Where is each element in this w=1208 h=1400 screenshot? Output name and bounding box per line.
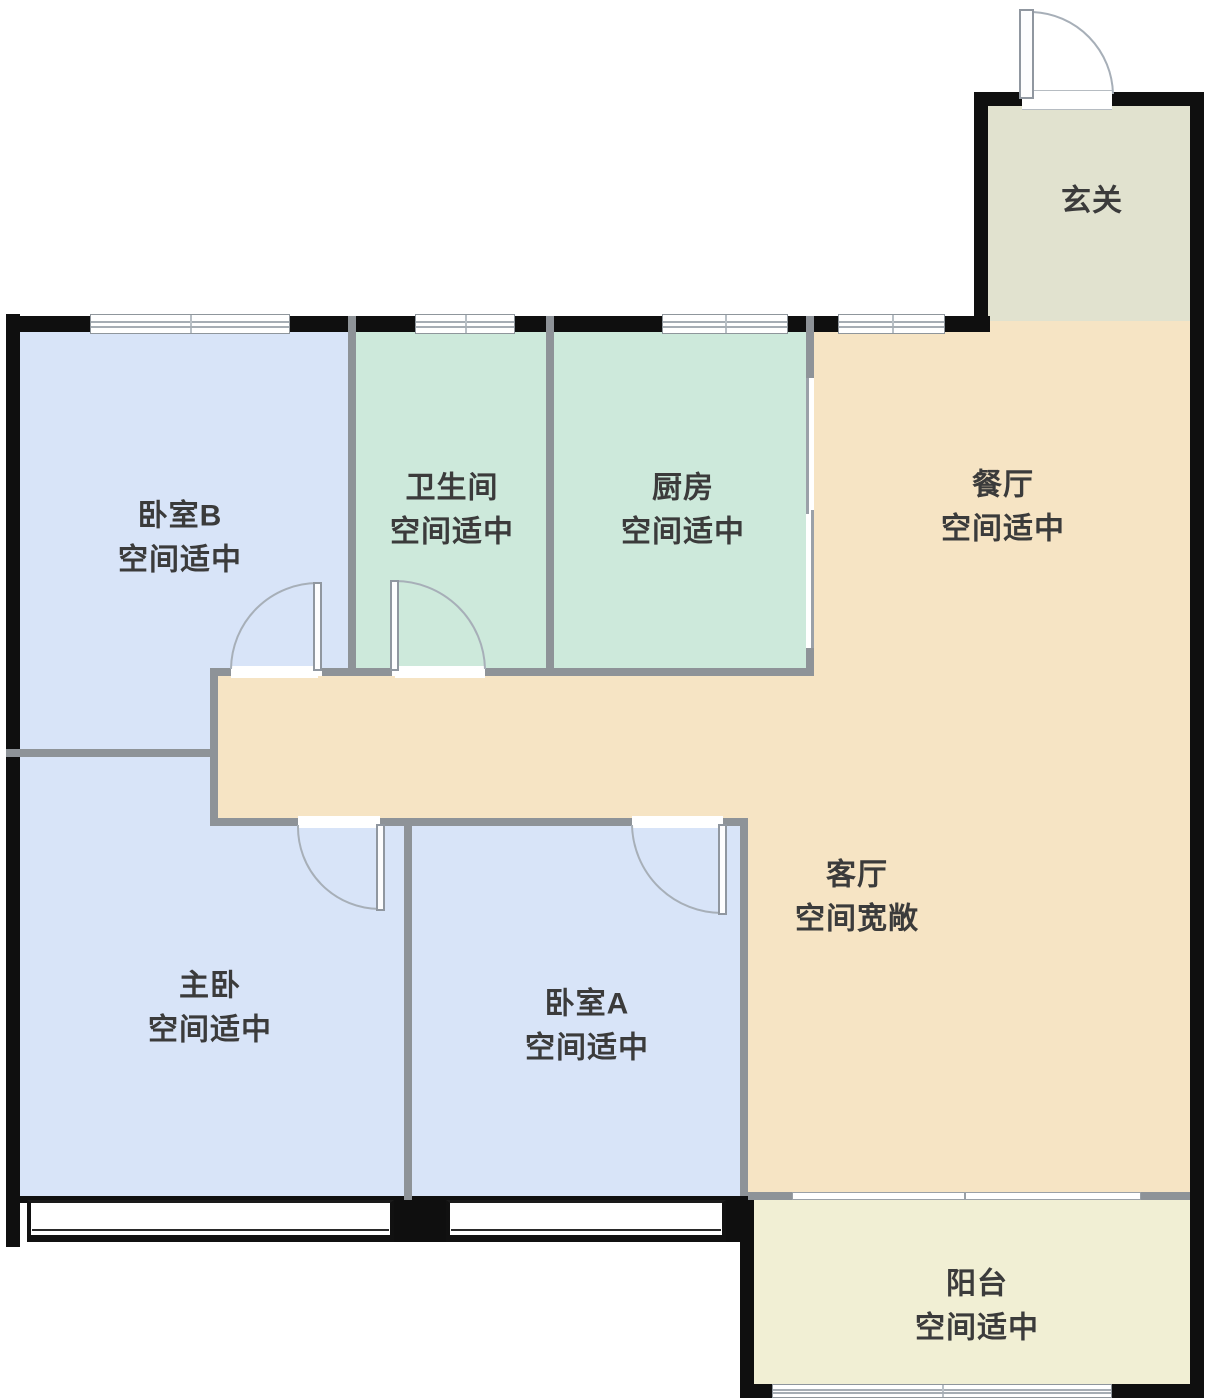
balcony-sliding-door-panel-2	[965, 1192, 1141, 1200]
room-name: 客厅	[795, 854, 919, 898]
entry-wall-left	[974, 104, 988, 332]
bedroomB-door-opening	[231, 666, 318, 678]
room-name: 玄关	[1061, 179, 1123, 223]
kitchen-window	[662, 314, 788, 334]
exterior-wall-left	[6, 314, 20, 1247]
bedroomB-master-wall	[6, 749, 218, 757]
entry-door-leaf	[1020, 10, 1033, 98]
room-name: 主卧	[148, 965, 272, 1009]
bedroomA-bay-window	[446, 1200, 726, 1242]
room-label-living: 客厅 空间宽敞	[795, 854, 919, 941]
room-label-bedroomA: 卧室A 空间适中	[525, 983, 649, 1070]
balcony-sliding-door-panel-1	[792, 1192, 965, 1200]
bedroomB-floor-lower	[20, 670, 210, 751]
room-status: 空间适中	[915, 1306, 1039, 1350]
room-label-balcony: 阳台 空间适中	[915, 1263, 1039, 1350]
bathroom-wall-left	[348, 316, 356, 676]
room-status: 空间适中	[525, 1026, 649, 1070]
room-status: 空间宽敞	[795, 897, 919, 941]
room-name: 卧室B	[118, 495, 242, 539]
window-divider	[725, 315, 727, 333]
room-status: 空间适中	[941, 507, 1065, 551]
balcony-wall-left	[740, 1192, 754, 1398]
floor-plan: 玄关 卧室B 空间适中 卫生间 空间适中 厨房 空间适中 餐厅 空间适中 客厅 …	[0, 0, 1208, 1400]
corridor-wall-bottom-2	[380, 818, 632, 826]
entry-wall-top-left	[974, 92, 1022, 106]
corridor-floor	[218, 676, 814, 818]
window-divider	[892, 315, 894, 333]
room-label-bedroomB: 卧室B 空间适中	[118, 495, 242, 582]
room-status: 空间适中	[148, 1008, 272, 1052]
kitchen-wall-right-top	[806, 316, 814, 378]
room-status: 空间适中	[118, 538, 242, 582]
room-label-kitchen: 厨房 空间适中	[621, 467, 745, 554]
room-status: 空间适中	[390, 510, 514, 554]
balcony-window	[772, 1384, 1112, 1398]
corridor-wall-left	[210, 668, 218, 826]
bathroom-window	[415, 314, 515, 334]
corridor-wall-bottom-1	[210, 818, 298, 826]
room-label-dining: 餐厅 空间适中	[941, 464, 1065, 551]
room-label-bathroom: 卫生间 空间适中	[390, 467, 514, 554]
bedroomB-window	[90, 314, 290, 334]
master-floor-upper	[20, 757, 210, 826]
exterior-wall-top-3	[515, 316, 662, 332]
dining-window	[838, 314, 945, 334]
exterior-wall-right	[1190, 92, 1204, 1398]
room-name: 卧室A	[525, 983, 649, 1027]
window-divider	[190, 315, 192, 333]
kitchen-sliding-door-panel-1	[806, 378, 809, 514]
room-status: 空间适中	[621, 510, 745, 554]
master-bedroomA-wall	[404, 818, 412, 1200]
bathroom-kitchen-wall	[546, 316, 554, 676]
entry-door-opening	[1022, 90, 1112, 110]
corridor-wall-top-2	[322, 668, 392, 676]
room-label-master: 主卧 空间适中	[148, 965, 272, 1052]
bedroomA-door-opening	[632, 816, 723, 828]
room-name: 卫生间	[390, 467, 514, 511]
bathroom-door-opening	[395, 666, 485, 678]
room-name: 阳台	[915, 1263, 1039, 1307]
window-divider	[465, 315, 467, 333]
balcony-wall-bottom-left	[740, 1384, 772, 1398]
balcony-header-stub-right	[1141, 1192, 1190, 1200]
bedroomA-living-wall	[740, 818, 748, 1196]
entry-door-swing-arc	[1033, 12, 1113, 94]
kitchen-sliding-door-panel-2	[811, 510, 814, 648]
room-label-entry: 玄关	[1061, 179, 1123, 223]
room-name: 厨房	[621, 467, 745, 511]
balcony-wall-bottom-right	[1112, 1384, 1204, 1398]
master-door-opening	[298, 816, 380, 828]
bay-window-stub-middle	[394, 1196, 446, 1242]
room-name: 餐厅	[941, 464, 1065, 508]
window-divider	[942, 1385, 944, 1397]
corridor-wall-top-3	[485, 668, 814, 676]
master-bay-window	[27, 1200, 394, 1242]
balcony-header-stub-left	[748, 1192, 792, 1200]
